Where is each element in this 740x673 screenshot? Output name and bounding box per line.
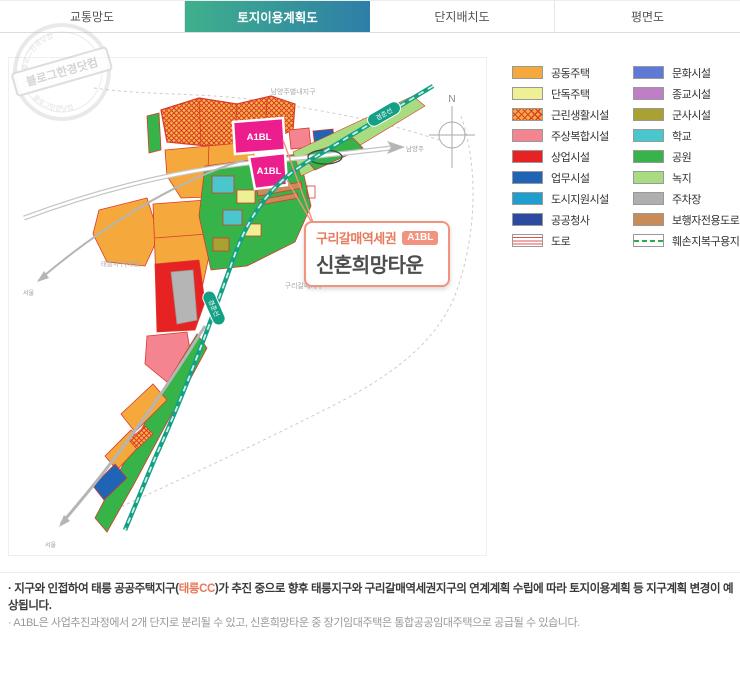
note-line-2: · A1BL은 사업추진과정에서 2개 단지로 분리될 수 있고, 신혼희망타운… (8, 615, 736, 632)
legend-swatch-neighborhood (512, 108, 543, 121)
legend-swatch-park (633, 150, 664, 163)
legend-label: 공동주택 (551, 65, 589, 81)
legend-swatch-mixeduse (512, 129, 543, 142)
legend-item: 녹지 (633, 167, 740, 188)
legend-item: 종교시설 (633, 83, 740, 104)
legend-label: 주차장 (672, 191, 701, 207)
legend-item: 도로 (512, 230, 633, 251)
legend-column-2: 문화시설 종교시설 군사시설 학교 공원 녹지 주차장 보행자전용도로 훼손지복… (633, 62, 740, 251)
legend-swatch-school (633, 129, 664, 142)
legend-item: 훼손지복구용지 (633, 230, 740, 251)
legend-label: 업무시설 (551, 170, 589, 186)
legend-swatch-military (633, 108, 664, 121)
legend-swatch-restoration (633, 234, 664, 247)
legend-swatch-culture (633, 66, 664, 79)
legend-label: 훼손지복구용지 (672, 233, 739, 249)
legend-label: 군사시설 (672, 107, 710, 123)
legend-item: 공원 (633, 146, 740, 167)
note-line-1: · 지구와 인접하여 태릉 공공주택지구(태릉CC)가 추진 중으로 향후 태릉… (8, 581, 736, 615)
legend-item: 단독주택 (512, 83, 633, 104)
note-1-pre: · 지구와 인접하여 태릉 공공주택지구( (8, 583, 179, 595)
a1bl-callout: 구리갈매역세권 A1BL 신혼희망타운 (304, 221, 450, 287)
tab-floor-plan[interactable]: 평면도 (555, 1, 740, 32)
legend-item: 문화시설 (633, 62, 740, 83)
landuse-map-panel: A1BL A1BL 경춘선 경춘선 (8, 57, 487, 556)
block-school-1 (212, 176, 234, 193)
legend-item: 상업시설 (512, 146, 633, 167)
label-namyangju: 남양주 (406, 144, 424, 153)
legend-label: 주상복합시설 (551, 128, 609, 144)
legend-item: 도시지원시설 (512, 188, 633, 209)
rail-label-capsule-south: 경춘선 (201, 289, 228, 327)
legend-item: 근린생활시설 (512, 104, 633, 125)
legend-swatch-citysupport (512, 192, 543, 205)
legend-label: 종교시설 (672, 86, 710, 102)
callout-station-area-label: 구리갈매역세권 (316, 228, 396, 247)
legend-label: 학교 (672, 128, 691, 144)
label-seoul-south: 서울 (45, 541, 57, 549)
legend-column-1: 공동주택 단독주택 근린생활시설 주상복합시설 상업시설 업무시설 도시지원시설… (512, 62, 633, 251)
legend-swatch-religious (633, 87, 664, 100)
legend-swatch-parking (633, 192, 664, 205)
legend-label: 문화시설 (672, 65, 710, 81)
legend-label: 도로 (551, 233, 570, 249)
legend-label: 근린생활시설 (551, 107, 609, 123)
legend-label: 공공청사 (551, 212, 589, 228)
page: 교통망도 토지이용계획도 단지배치도 평면도 블로그한경닷컴 블로그한경닷컴 블… (0, 0, 740, 673)
legend-swatch-apartment (512, 66, 543, 79)
block-detached-1 (237, 190, 255, 203)
compass-n-label: N (448, 94, 455, 105)
block-school-2 (223, 210, 242, 225)
block-military (213, 238, 229, 251)
legend-label: 상업시설 (551, 149, 589, 165)
legend-swatch-road (512, 234, 543, 247)
legend-label: 공원 (672, 149, 691, 165)
label-seoul-west: 서울 (23, 289, 35, 297)
a1bl-label-north: A1BL (247, 132, 272, 143)
label-top-district: 남양주별내지구 (270, 87, 316, 96)
legend-label: 보행자전용도로 (672, 212, 739, 228)
compass: N (429, 94, 475, 168)
tab-landuse-plan[interactable]: 토지이용계획도 (185, 1, 370, 32)
footer-divider (0, 572, 740, 573)
legend-item: 보행자전용도로 (633, 209, 740, 230)
landuse-map: A1BL A1BL 경춘선 경춘선 (9, 58, 488, 557)
footer-notes: · 지구와 인접하여 태릉 공공주택지구(태릉CC)가 추진 중으로 향후 태릉… (8, 581, 736, 632)
a1bl-label-south: A1BL (257, 166, 282, 177)
map-legend: 공동주택 단독주택 근린생활시설 주상복합시설 상업시설 업무시설 도시지원시설… (512, 62, 740, 251)
label-left-district: 태릉지구(예정) (101, 259, 141, 268)
legend-swatch-greenbelt (633, 171, 664, 184)
legend-item: 군사시설 (633, 104, 740, 125)
callout-town-name: 신혼희망타운 (316, 249, 438, 278)
legend-swatch-pedestrian (633, 213, 664, 226)
callout-a1bl-badge: A1BL (402, 231, 438, 245)
legend-item: 주상복합시설 (512, 125, 633, 146)
legend-label: 단독주택 (551, 86, 589, 102)
legend-swatch-govoffice (512, 213, 543, 226)
note-1-highlight: 태릉CC (179, 583, 215, 595)
legend-swatch-office (512, 171, 543, 184)
legend-item: 공동주택 (512, 62, 633, 83)
legend-swatch-detached (512, 87, 543, 100)
legend-label: 녹지 (672, 170, 691, 186)
legend-item: 공공청사 (512, 209, 633, 230)
legend-swatch-commercial (512, 150, 543, 163)
legend-item: 주차장 (633, 188, 740, 209)
tab-traffic-map[interactable]: 교통망도 (0, 1, 185, 32)
legend-label: 도시지원시설 (551, 191, 609, 207)
tab-complex-layout[interactable]: 단지배치도 (370, 1, 555, 32)
legend-item: 업무시설 (512, 167, 633, 188)
tab-bar: 교통망도 토지이용계획도 단지배치도 평면도 (0, 0, 740, 33)
legend-item: 학교 (633, 125, 740, 146)
block-park-small (147, 113, 161, 153)
